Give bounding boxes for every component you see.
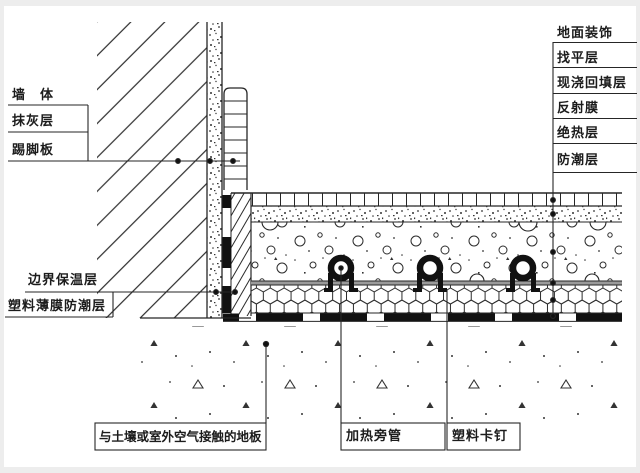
skirting-board-label: 踢脚板 <box>12 143 54 158</box>
thermal-insulation-layer <box>251 285 622 313</box>
construction-detail-drawing <box>0 0 640 473</box>
insulation-layer-label: 绝热层 <box>557 126 599 141</box>
edge-insulation-label: 边界保温层 <box>28 273 98 288</box>
wall-hatch <box>97 22 207 318</box>
backfill-layer-label: 现浇回填层 <box>557 76 627 91</box>
edge-insulation-strip <box>231 193 251 316</box>
leveling-layer <box>251 206 622 222</box>
plastic-film-moisture-barrier-label: 塑料薄膜防潮层 <box>8 299 106 314</box>
moisture-barrier-layer <box>223 314 622 322</box>
plaster-layer-label: 抹灰层 <box>12 114 54 129</box>
moisture-barrier-label: 防潮层 <box>557 153 599 168</box>
ground-contact-floor-label: 与土壤或室外空气接触的地板 <box>99 429 262 444</box>
plastic-clip-label: 塑料卡钉 <box>452 429 508 444</box>
reflective-film-label: 反射膜 <box>557 101 599 116</box>
floor-finish-layer <box>251 193 622 206</box>
wall-label: 墙 体 <box>12 88 54 103</box>
heating-pipe-label: 加热旁管 <box>346 429 402 444</box>
plaster-strip <box>207 22 222 318</box>
soil-scatter <box>135 326 628 420</box>
floor-finish-label: 地面装饰 <box>557 26 613 41</box>
skirting-board <box>224 88 247 190</box>
leveling-layer-label: 找平层 <box>557 51 599 66</box>
reflective-film <box>251 281 622 285</box>
construction-detail-screenshot: 地面装饰 找平层 现浇回填层 反射膜 绝热层 防潮层 墙 体 抹灰层 踢脚板 边… <box>0 0 640 473</box>
